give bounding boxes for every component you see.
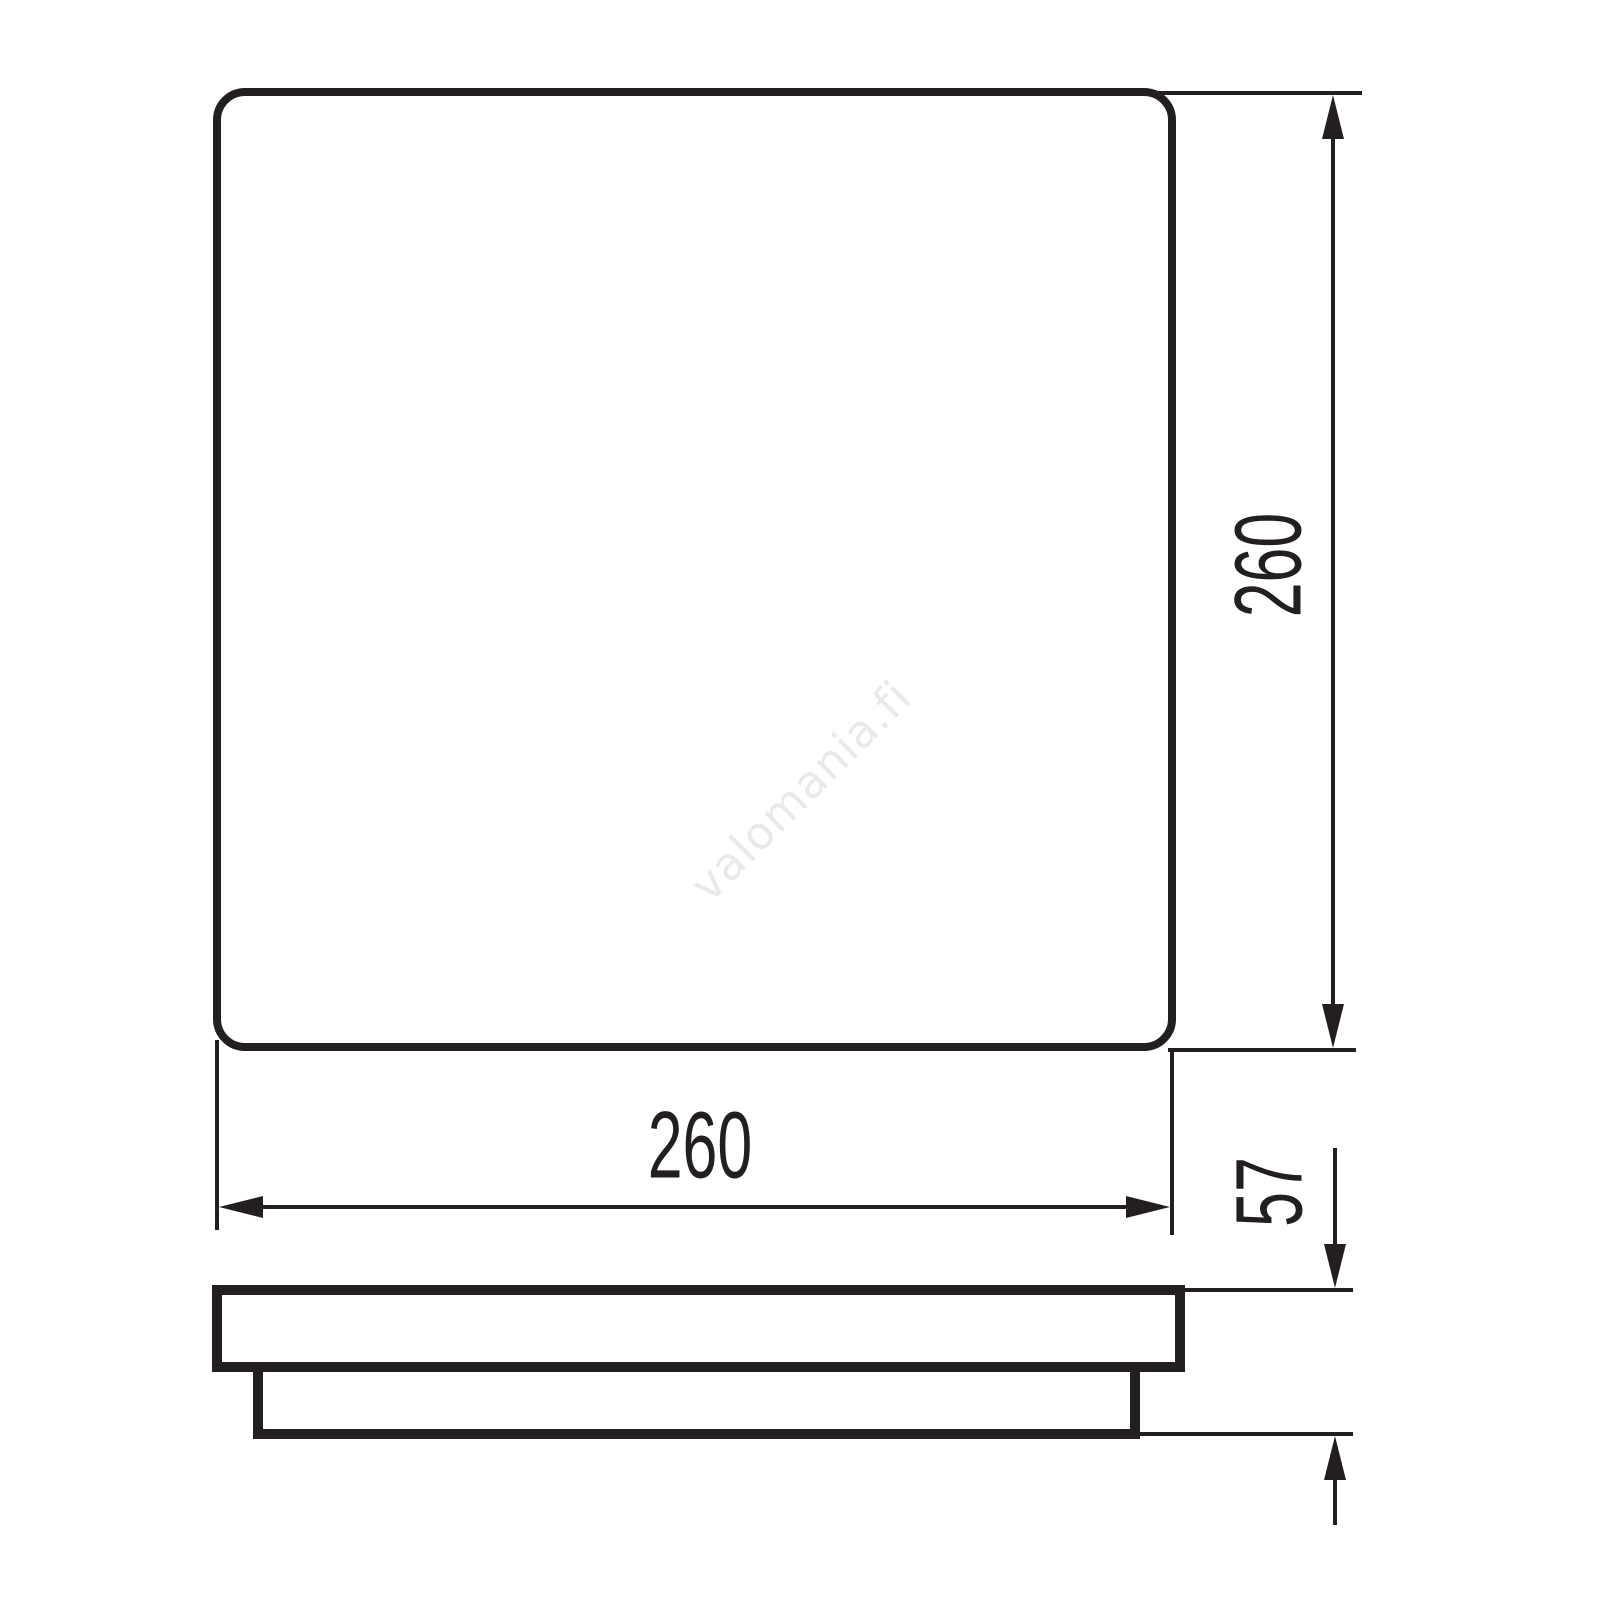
dimension-height-label: 260 — [1222, 513, 1317, 618]
technical-drawing-page: 260 260 57 valomania.fi — [0, 0, 1599, 1600]
side-view-bottom-band — [258, 1367, 1135, 1434]
dimension-depth-label: 57 — [1223, 1157, 1318, 1227]
front-view-panel — [217, 92, 1172, 1047]
arrowhead-right-icon — [1126, 1196, 1170, 1218]
dimension-width-label: 260 — [648, 1099, 753, 1194]
arrowhead-left-icon — [219, 1196, 263, 1218]
side-view-top-band — [217, 1290, 1180, 1367]
arrowhead-depth-up-icon — [1324, 1436, 1346, 1480]
arrowhead-down-icon — [1322, 1004, 1344, 1048]
arrowhead-up-icon — [1322, 95, 1344, 139]
arrowhead-depth-down-icon — [1324, 1244, 1346, 1288]
